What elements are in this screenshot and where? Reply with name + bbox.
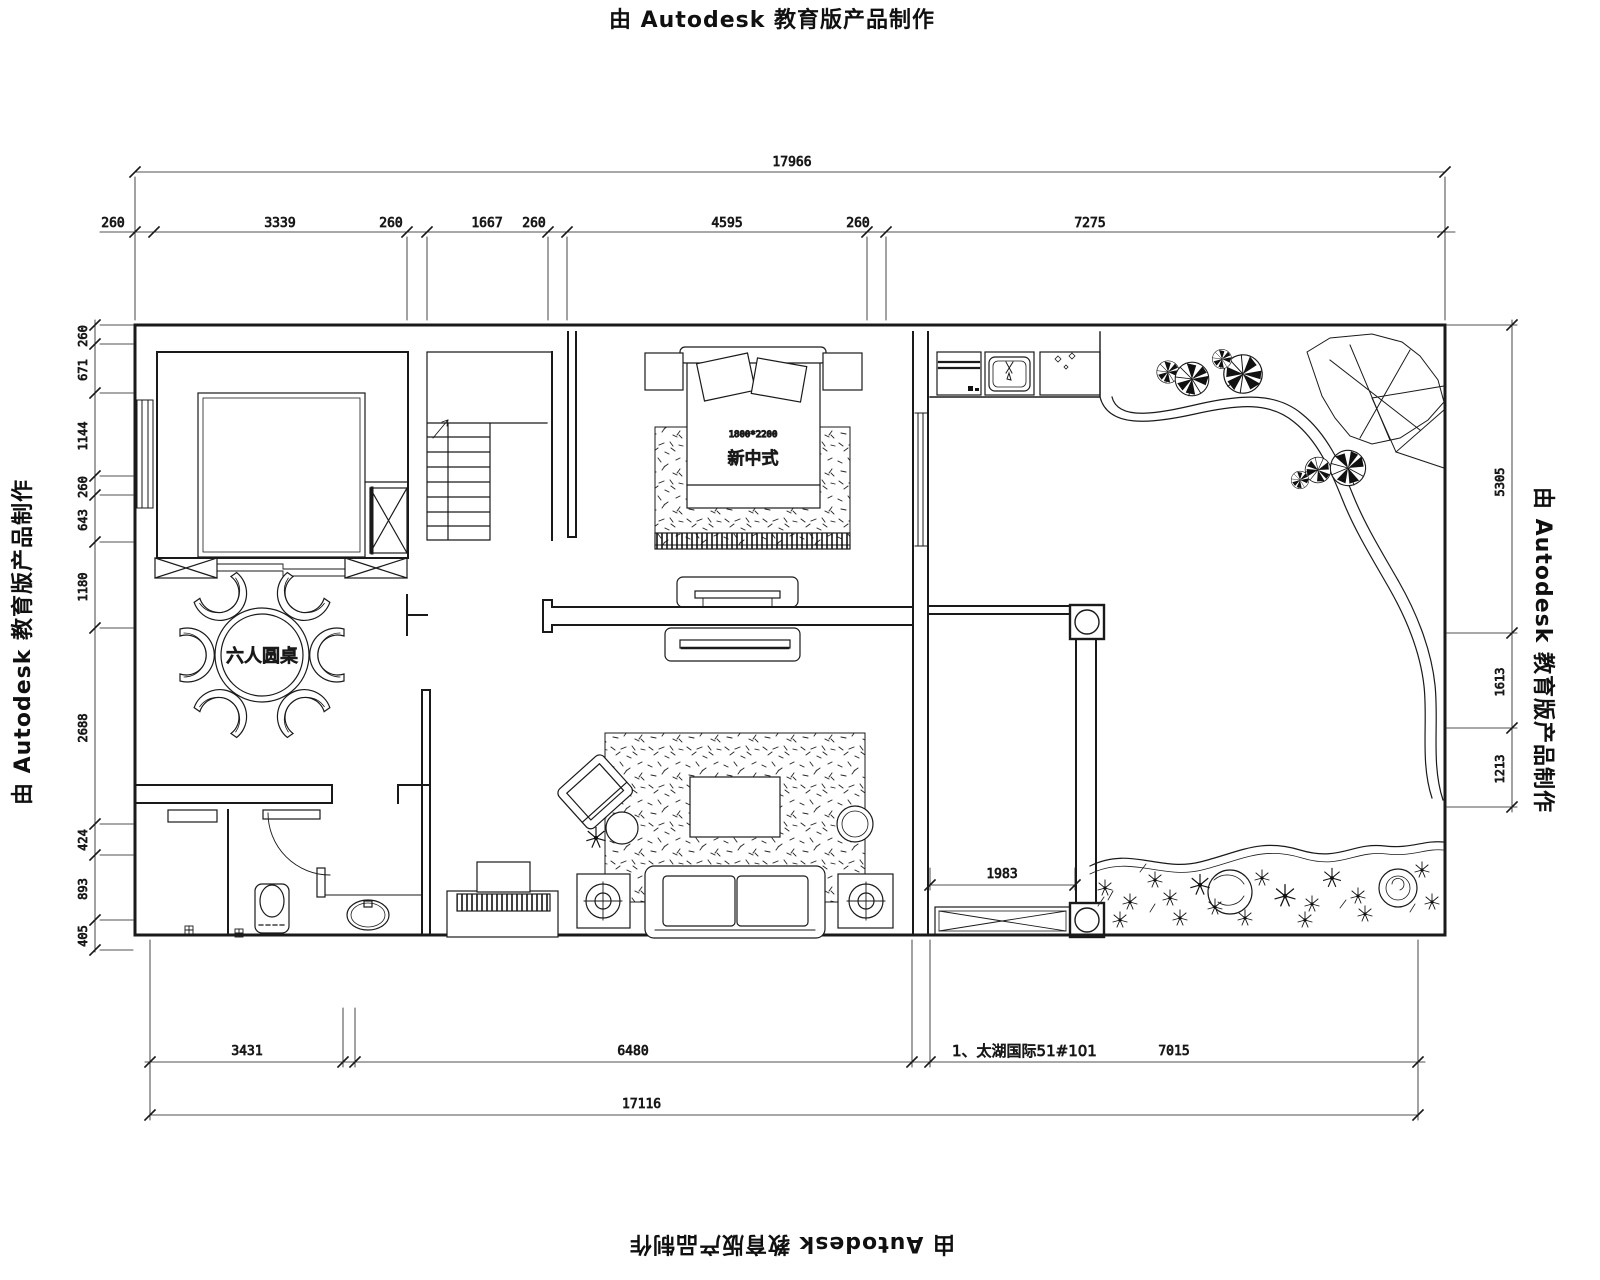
plant-symbol [587,828,605,848]
staircase [427,352,552,540]
tree-symbol [1212,349,1231,368]
dim-label: 424 [76,829,90,851]
dim-label: 7275 [1074,216,1105,231]
watermark-right: 由 Autodesk 教育版产品制作 [1529,487,1561,813]
dim-label: 17116 [622,1097,661,1112]
living-room [447,733,893,938]
dim-label: 260 [522,216,545,231]
bed-bench [655,533,850,549]
sink-symbol [347,900,389,930]
side-table [606,812,638,844]
dining-table-label: 六人圆桌 [226,646,298,667]
dim-label: 260 [379,216,402,231]
tv-console [665,577,800,661]
window-sill-hatch [155,558,407,578]
watermark-bottom: 由 Autodesk 教育版产品制作 [629,1230,955,1262]
dining-chair [310,628,344,682]
tv [477,862,530,892]
dim-label: 260 [846,216,869,231]
dim-label: 2688 [76,714,90,743]
dim-label: 7015 [1158,1044,1189,1059]
toilet-symbol [255,884,289,933]
nightstand [645,353,683,390]
shaft-symbol [370,488,407,553]
dining-chair [180,628,214,682]
master-bedroom: 1800*2200 新中式 [645,347,862,661]
shrub-symbol [1379,869,1417,907]
kitchen-garden-room [930,332,1444,937]
dim-label: 4595 [711,216,742,231]
dim-label: 893 [76,878,90,900]
nightstand [823,353,862,390]
kitchen-counter-unit [937,352,981,395]
dim-label: 643 [76,509,90,531]
project-label: 1、太湖国际51#101 [952,1042,1097,1060]
dining-area: 六人圆桌 [180,572,344,738]
kitchen-sink [985,352,1034,395]
dim-label: 1667 [471,216,502,231]
round-side-table [837,806,873,842]
speaker-left [577,874,630,928]
dim-label: 1983 [986,867,1017,882]
dim-label: 405 [76,925,90,947]
coffee-table [690,777,780,837]
garden-strip [1090,842,1443,927]
speaker-right [838,874,893,928]
floor-plan-drawing: 17966 260 3339 260 1667 260 4595 260 727… [0,0,1600,1280]
dim-label: 1213 [1493,755,1507,784]
garden-path [1112,397,1443,800]
dim-label: 671 [76,359,90,381]
corner-plant [1307,334,1444,468]
dim-label: 1144 [76,422,90,451]
dim-label: 1613 [1493,668,1507,697]
watermark-top: 由 Autodesk 教育版产品制作 [609,2,935,34]
bed-style-label: 新中式 [728,449,779,469]
dim-label: 3339 [264,216,295,231]
dim-label: 260 [76,325,90,347]
dim-label: 1180 [76,573,90,602]
grass-marks [1098,864,1415,912]
bathroom [168,810,422,937]
sofa [645,866,825,938]
top-left-room [137,352,408,578]
bed-size-label: 1800*2200 [729,430,778,440]
dim-label: 5305 [1493,468,1507,497]
headboard [680,347,826,363]
window-symbol [137,400,153,508]
tree-symbol [1291,471,1309,489]
dim-label: 3431 [231,1044,262,1059]
dim-label: 260 [101,216,124,231]
tree-symbol [1324,444,1372,492]
window-hatch-bedroom2 [935,907,1070,935]
tv-cabinet [447,862,558,937]
stove [1040,352,1100,395]
cad-floor-plan-page: 由 Autodesk 教育版产品制作 由 Autodesk 教育版产品制作 由 … [0,0,1600,1280]
tree-symbol [1175,362,1209,396]
dim-label: 17966 [772,155,811,170]
dim-label: 260 [76,476,90,498]
dim-label: 6480 [617,1044,648,1059]
garden-path [1100,397,1432,798]
door-arc [268,813,330,875]
watermark-left: 由 Autodesk 教育版产品制作 [5,479,37,805]
